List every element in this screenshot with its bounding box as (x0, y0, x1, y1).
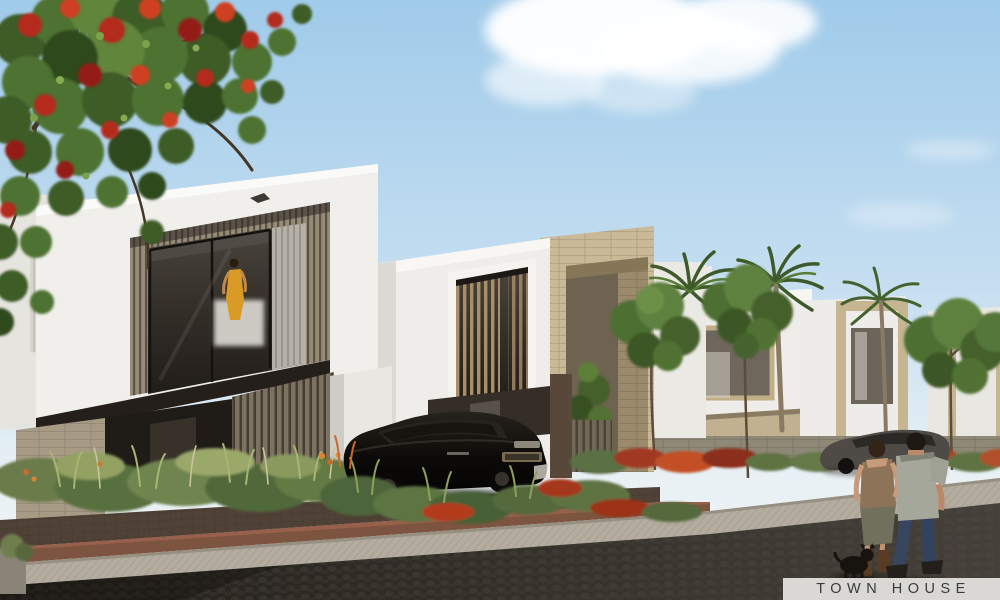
townhouse-render: TOWN HOUSE (0, 0, 1000, 600)
suv-badge (447, 452, 469, 455)
caption-bar: TOWN HOUSE (783, 578, 1000, 600)
house-1-curtain (272, 223, 306, 370)
house-2-side-wall (550, 374, 572, 478)
render-scene (0, 0, 1000, 600)
caption-label: TOWN HOUSE (816, 581, 971, 597)
